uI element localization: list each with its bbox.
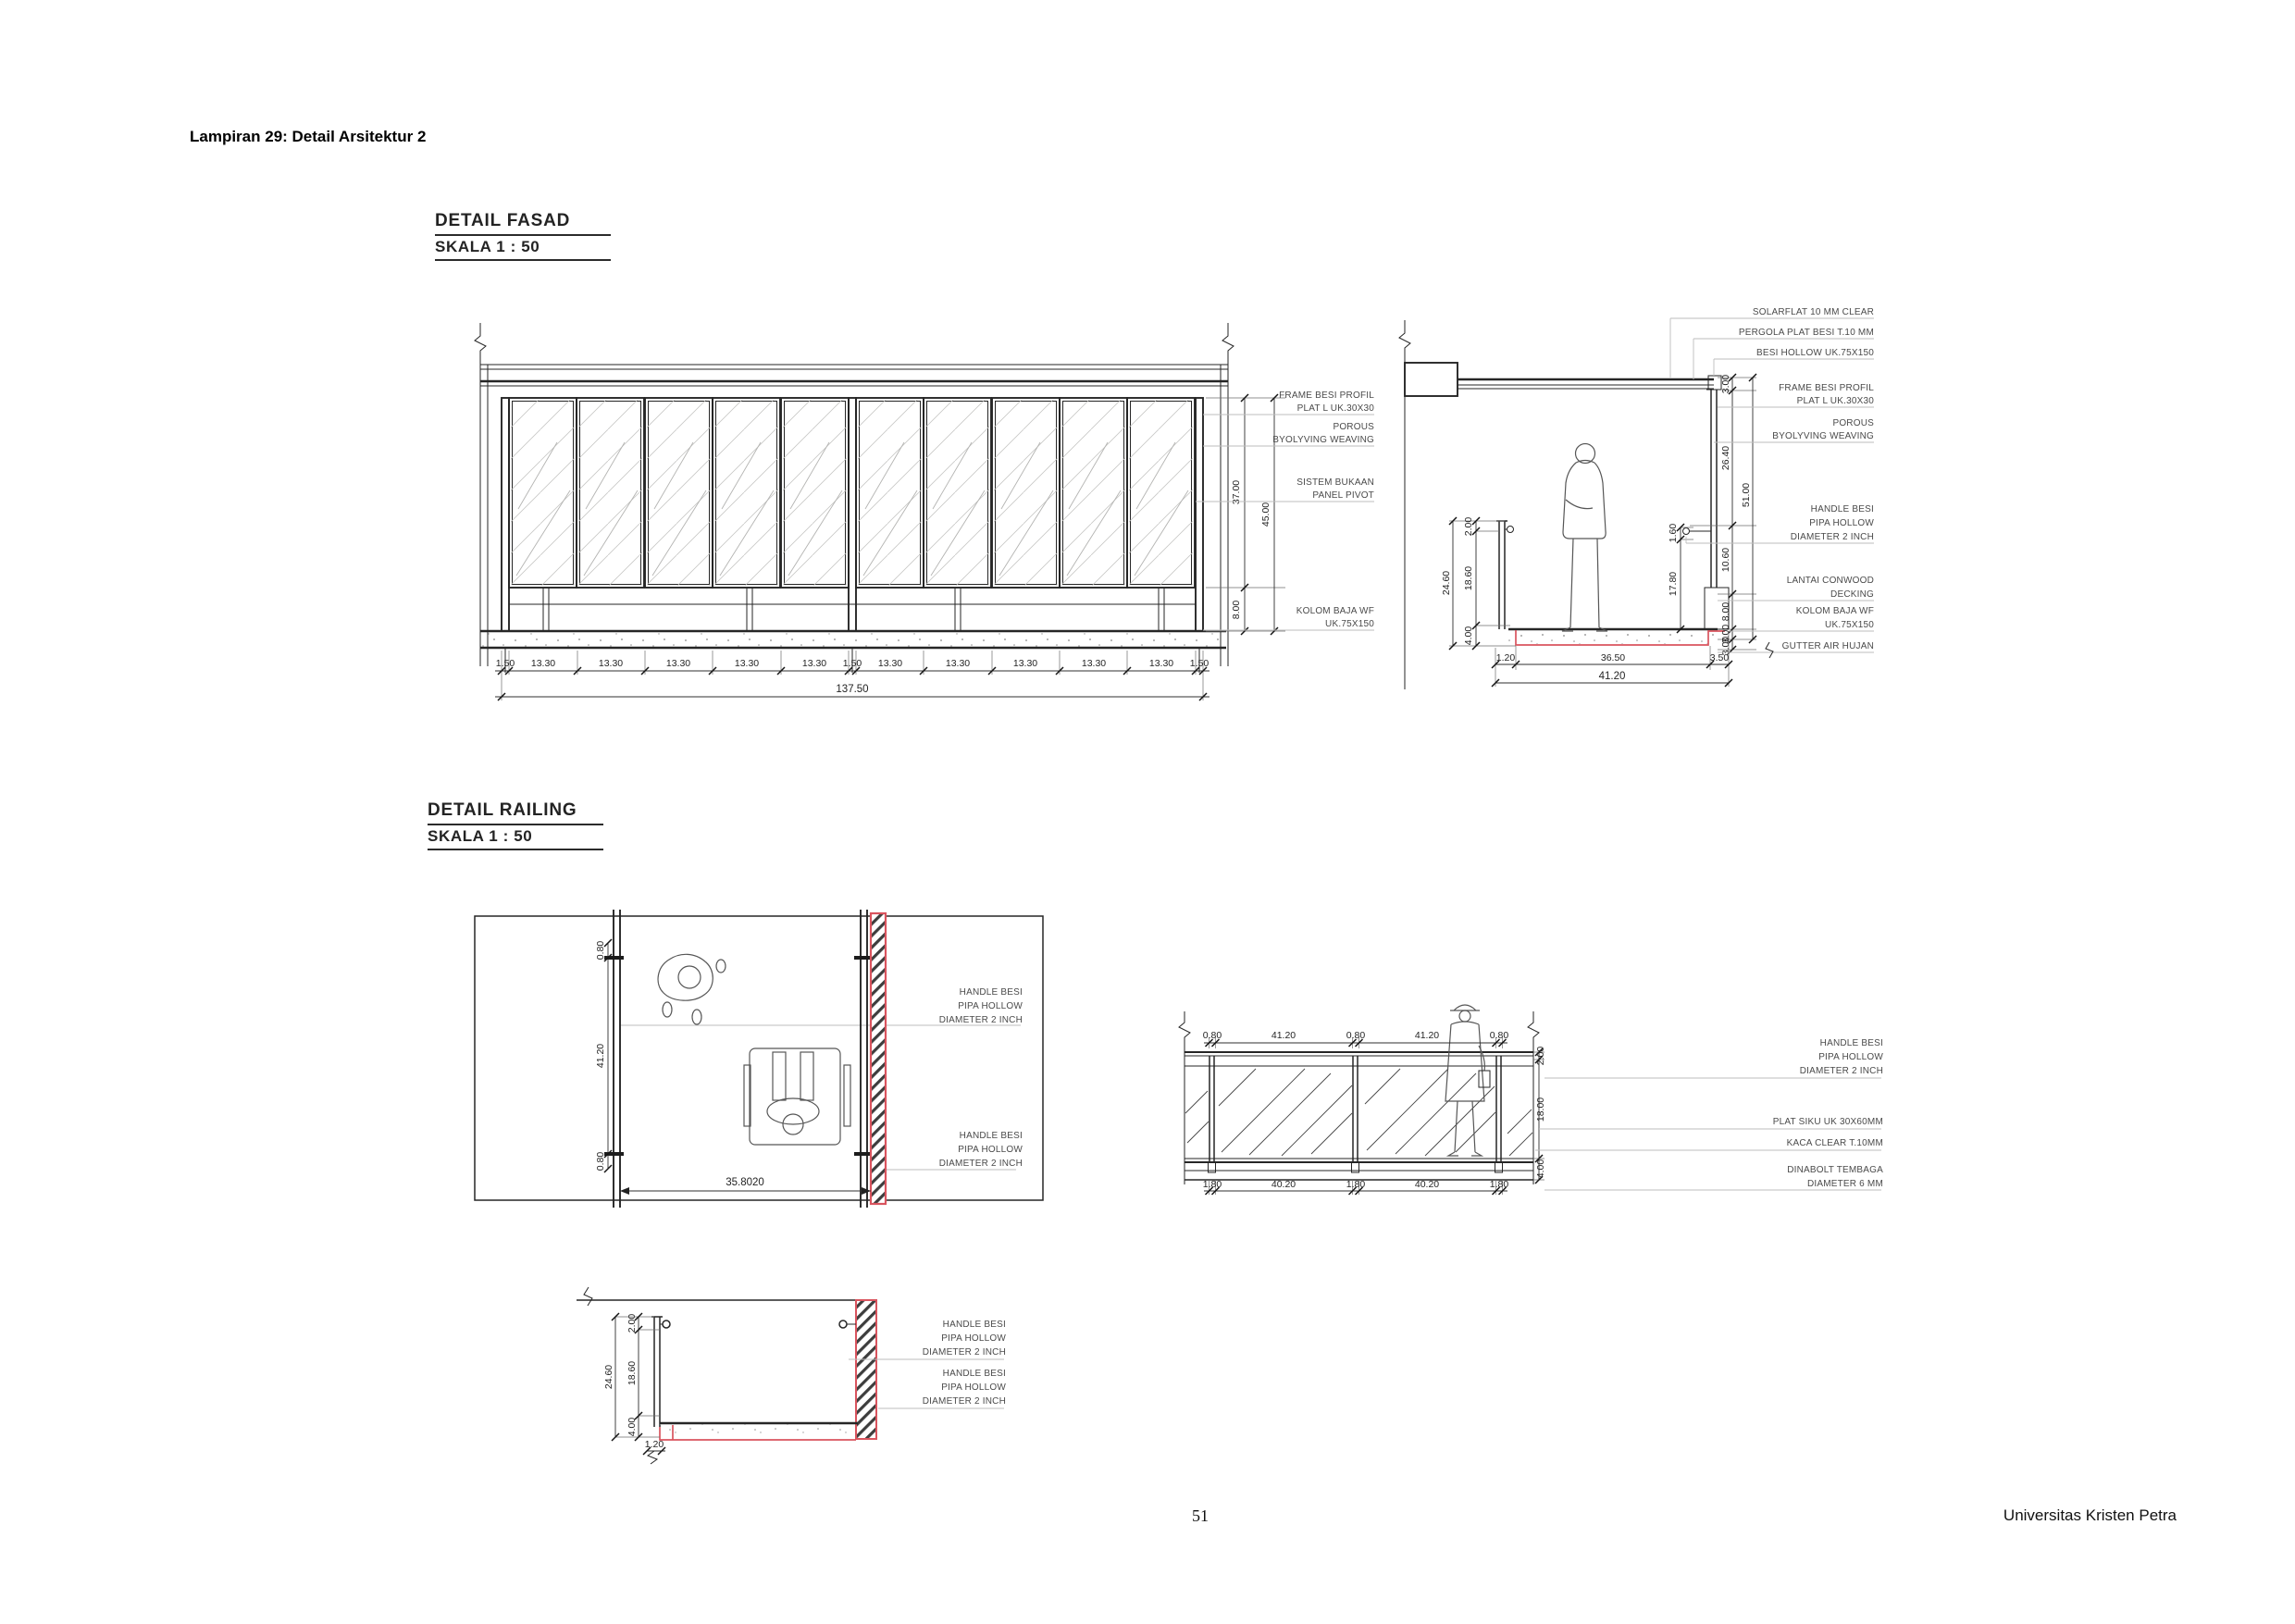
annotation-line: PANEL PIVOT (1312, 490, 1374, 501)
dim-label: 0.80 (1203, 1030, 1222, 1041)
floor-slab (660, 1423, 858, 1440)
annotation-line: PIPA HOLLOW (941, 1382, 1006, 1393)
annotation-line: PIPA HOLLOW (958, 1001, 1023, 1011)
dim-label: 2.00 (1463, 517, 1474, 537)
plan-bottom-dimension: 35.8020 (620, 1177, 871, 1195)
annotation-line: PIPA HOLLOW (1809, 518, 1874, 528)
section-right-dimensions: 3.00 26.40 10.60 8.00 3.00 3.00 51.00 (1690, 374, 1756, 655)
dim-label: 41.20 (1599, 671, 1626, 682)
ground-break-mark (1766, 642, 1773, 658)
dim-base-height: 8.00 (1231, 601, 1242, 620)
elevation-annotations: HANDLE BESI PIPA HOLLOW DIAMETER 2 INCH … (1535, 1038, 1883, 1190)
annotation-line: POROUS (1333, 422, 1374, 432)
annotation-line: PIPA HOLLOW (1818, 1052, 1883, 1062)
dim-label: 8.00 (1720, 602, 1731, 622)
dim-label: 1.60 (1668, 524, 1679, 543)
wheelchair-person-figure (744, 1048, 850, 1145)
dim-label: 4.00 (1535, 1159, 1546, 1179)
annotation-line: UK.75X150 (1825, 620, 1874, 630)
railing-horizontals (1185, 1052, 1533, 1180)
annotation-line: GUTTER AIR HUJAN (1782, 641, 1874, 651)
dim-label: 1.80 (1346, 1179, 1366, 1190)
page-header: Lampiran 29: Detail Arsitektur 2 (190, 128, 426, 146)
annotation-line: PLAT SIKU UK 30X60MM (1773, 1117, 1883, 1127)
dim-label: 17.80 (1668, 572, 1679, 596)
dim-panel-height: 37.00 (1231, 480, 1242, 504)
dim-label: 1.80 (1203, 1179, 1222, 1190)
dim-label: 4.00 (1463, 626, 1474, 646)
railing-elevation-drawing: 0.80 41.20 0.80 41.20 0.80 1.80 40.20 1.… (1171, 995, 1906, 1217)
facade-right-dimensions: 37.00 8.00 45.00 (1206, 394, 1285, 635)
dim-label: 41.20 (595, 1044, 606, 1068)
standing-person-figure (1445, 1005, 1490, 1156)
annotation-line: KOLOM BAJA WF (1296, 606, 1374, 616)
wall-hatch-column (856, 1300, 876, 1439)
annotation-line: DIAMETER 2 INCH (1791, 532, 1874, 542)
dim-label: 3.00 (1720, 375, 1731, 394)
elevation-right-dimensions: 2.00 18.00 4.00 (1533, 1047, 1546, 1184)
annotation-line: HANDLE BESI (1811, 504, 1874, 514)
annotation-line: HANDLE BESI (1820, 1038, 1883, 1048)
elevation-bottom-dimensions: 1.80 40.20 1.80 40.20 1.80 (1203, 1179, 1509, 1195)
dim-label: 40.20 (1272, 1179, 1296, 1190)
dim-label: 13.30 (1013, 658, 1037, 669)
dim-label: 18.60 (626, 1361, 638, 1385)
section-title-fasad: DETAIL FASAD SKALA 1 : 50 (435, 211, 611, 261)
plan-left-dimensions: 0.80 41.20 0.80 (595, 939, 612, 1172)
elevation-top-dimensions: 0.80 41.20 0.80 41.20 0.80 (1203, 1030, 1509, 1048)
fasad-title: DETAIL FASAD (435, 211, 611, 236)
dim-label: 0.80 (595, 941, 606, 961)
railing-section-dimensions: 2.00 18.60 24.60 4.00 1.20 (603, 1313, 665, 1455)
annotation-line: BYOLYVING WEAVING (1772, 431, 1874, 441)
fasad-scale: SKALA 1 : 50 (435, 238, 611, 261)
annotation-line: DIAMETER 2 INCH (923, 1347, 1006, 1357)
dim-label: 41.20 (1415, 1030, 1439, 1041)
dim-label: 1.20 (645, 1439, 664, 1450)
railing-plan-drawing: 0.80 41.20 0.80 35.8020 HANDLE BESI PIPA… (467, 902, 1097, 1221)
dim-label: 2.00 (1535, 1047, 1546, 1066)
dim-label: 3.50 (1710, 652, 1730, 663)
dim-label: 36.50 (1601, 652, 1625, 663)
dim-opening: 35.8020 (726, 1177, 764, 1188)
annotation-line: DIAMETER 2 INCH (1800, 1066, 1883, 1076)
dim-label: 2.00 (626, 1314, 638, 1333)
annotation-line: HANDLE BESI (943, 1369, 1006, 1379)
section-inner-dimensions: 1.60 17.80 (1668, 524, 1693, 633)
dim-label: 1.20 (1496, 652, 1516, 663)
dim-label: 40.20 (1415, 1179, 1439, 1190)
annotation-line: PIPA HOLLOW (958, 1145, 1023, 1155)
annotation-line: PLAT L UK.30X30 (1797, 396, 1875, 406)
dim-label: 13.30 (1149, 658, 1173, 669)
annotation-line: KACA CLEAR T.10MM (1787, 1138, 1883, 1148)
dim-label: 13.30 (802, 658, 826, 669)
annotation-line: PIPA HOLLOW (941, 1333, 1006, 1344)
annotation-line: DIAMETER 2 INCH (939, 1015, 1023, 1025)
plan-handrails (604, 910, 874, 1208)
section-annotations: SOLARFLAT 10 MM CLEAR PERGOLA PLAT BESI … (1670, 307, 1874, 658)
annotation-line: BYOLYVING WEAVING (1272, 435, 1374, 445)
facade-break-marks (475, 323, 1234, 399)
porous-screen (1706, 390, 1721, 588)
annotation-line: DIAMETER 2 INCH (939, 1159, 1023, 1169)
dim-label: 0.80 (595, 1152, 606, 1172)
person-figure (1562, 444, 1607, 632)
annotation-line: HANDLE BESI (960, 987, 1023, 998)
railing-scale: SKALA 1 : 50 (428, 827, 603, 850)
walking-person-figure (658, 954, 726, 1024)
facade-panels (509, 398, 1195, 588)
annotation-line: DIAMETER 6 MM (1807, 1179, 1883, 1189)
annotation-line: POROUS (1832, 418, 1874, 428)
annotation-line: UK.75X150 (1325, 619, 1374, 629)
annotation-line: SISTEM BUKAAN (1296, 477, 1374, 488)
dim-label: 4.00 (626, 1418, 638, 1437)
annotation-line: DINABOLT TEMBAGA (1787, 1165, 1883, 1175)
glass-hatch-lines (1185, 1069, 1532, 1156)
dim-label: 13.30 (946, 658, 970, 669)
dim-label: 18.00 (1535, 1097, 1546, 1122)
dim-label: 13.30 (666, 658, 690, 669)
dim-label: 13.30 (735, 658, 759, 669)
dim-total-width: 137.50 (836, 684, 868, 695)
annotation-line: FRAME BESI PROFIL (1279, 391, 1374, 401)
dim-label: 41.20 (1272, 1030, 1296, 1041)
plan-annotations: HANDLE BESI PIPA HOLLOW DIAMETER 2 INCH … (939, 987, 1023, 1169)
dim-label: 0.80 (1490, 1030, 1509, 1041)
annotation-line: LANTAI CONWOOD (1787, 576, 1874, 586)
facade-elevation-drawing: 1.50 13.30 13.30 13.30 13.30 13.30 1.50 … (467, 310, 1383, 745)
dim-label: 1.80 (1490, 1179, 1509, 1190)
annotation-line: DECKING (1830, 589, 1874, 600)
annotation-line: FRAME BESI PROFIL (1779, 383, 1874, 393)
dim-label: 13.30 (878, 658, 902, 669)
dim-label: 24.60 (1441, 571, 1452, 595)
annotation-line: HANDLE BESI (960, 1131, 1023, 1141)
floor-deck (1508, 629, 1725, 645)
section-title-railing: DETAIL RAILING SKALA 1 : 50 (428, 800, 603, 850)
ground-break-mark (584, 1287, 592, 1306)
facade-section-drawing: 2.00 18.60 4.00 24.60 1.60 17.80 3.00 26… (1388, 305, 1906, 740)
annotation-line: BESI HOLLOW UK.75X150 (1756, 348, 1874, 358)
railing-posts (1209, 1056, 1503, 1172)
dim-label: 18.60 (1463, 566, 1474, 590)
railing-section-drawing: 2.00 18.60 24.60 4.00 1.20 HANDLE BESI P… (569, 1286, 1087, 1481)
annotation-line: PLAT L UK.30X30 (1297, 403, 1375, 414)
dim-label: 0.80 (1346, 1030, 1366, 1041)
annotation-line: KOLOM BAJA WF (1796, 606, 1874, 616)
annotation-line: DIAMETER 2 INCH (923, 1396, 1006, 1407)
handrail-section (648, 1317, 856, 1464)
railing-title: DETAIL RAILING (428, 800, 603, 825)
dim-label: 51.00 (1741, 483, 1752, 507)
dim-label: 1.50 (843, 658, 862, 669)
dim-label: 24.60 (603, 1365, 614, 1389)
concrete-beam (1405, 363, 1458, 396)
dim-label: 13.30 (1082, 658, 1106, 669)
page-number: 51 (1192, 1506, 1209, 1526)
document-page: Lampiran 29: Detail Arsitektur 2 DETAIL … (0, 0, 2295, 1624)
dim-label: 13.30 (599, 658, 623, 669)
dim-label: 26.40 (1720, 446, 1731, 470)
annotation-line: HANDLE BESI (943, 1320, 1006, 1330)
facade-dimension-row: 1.50 13.30 13.30 13.30 13.30 13.30 1.50 … (495, 651, 1210, 700)
plan-boundary (475, 916, 1043, 1200)
facade-annotations: FRAME BESI PROFIL PLAT L UK.30X30 POROUS… (1196, 391, 1374, 630)
dim-label: 1.50 (1190, 658, 1210, 669)
pergola-roof (1458, 376, 1721, 390)
footer-institution: Universitas Kristen Petra (2003, 1506, 2177, 1525)
wall-hatch-strip (871, 913, 886, 1204)
dim-label: 13.30 (531, 658, 555, 669)
annotation-line: PERGOLA PLAT BESI T.10 MM (1739, 328, 1874, 338)
annotation-line: SOLARFLAT 10 MM CLEAR (1753, 307, 1874, 317)
dim-label: 1.50 (496, 658, 515, 669)
dim-label: 10.60 (1720, 548, 1731, 572)
dim-total-height: 45.00 (1260, 502, 1272, 527)
